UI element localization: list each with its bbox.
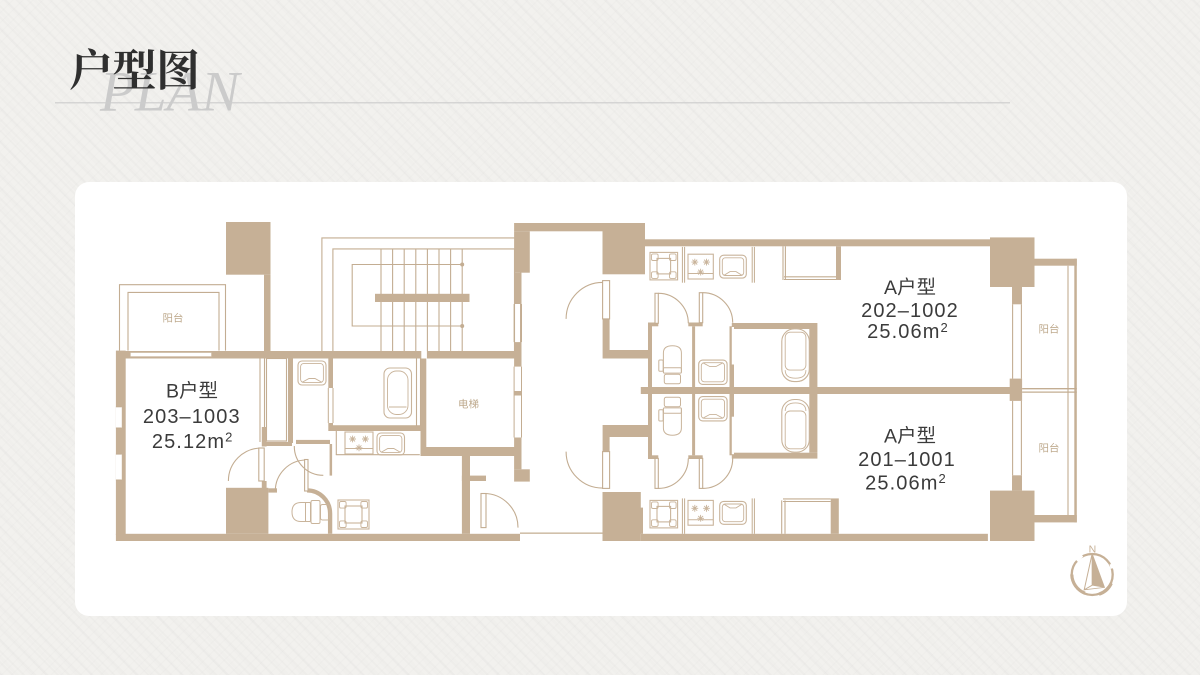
svg-text:B: B	[166, 381, 179, 403]
svg-text:A: A	[884, 277, 897, 299]
svg-text:N: N	[1089, 544, 1097, 556]
svg-text:203–1003: 203–1003	[143, 406, 241, 428]
svg-text:202–1002: 202–1002	[861, 300, 959, 322]
svg-text:25.06m2: 25.06m2	[867, 320, 949, 343]
svg-text:25.06m2: 25.06m2	[865, 471, 947, 494]
svg-text:201–1001: 201–1001	[858, 449, 956, 471]
svg-text:25.12m2: 25.12m2	[152, 430, 234, 453]
svg-text:A: A	[884, 426, 897, 448]
